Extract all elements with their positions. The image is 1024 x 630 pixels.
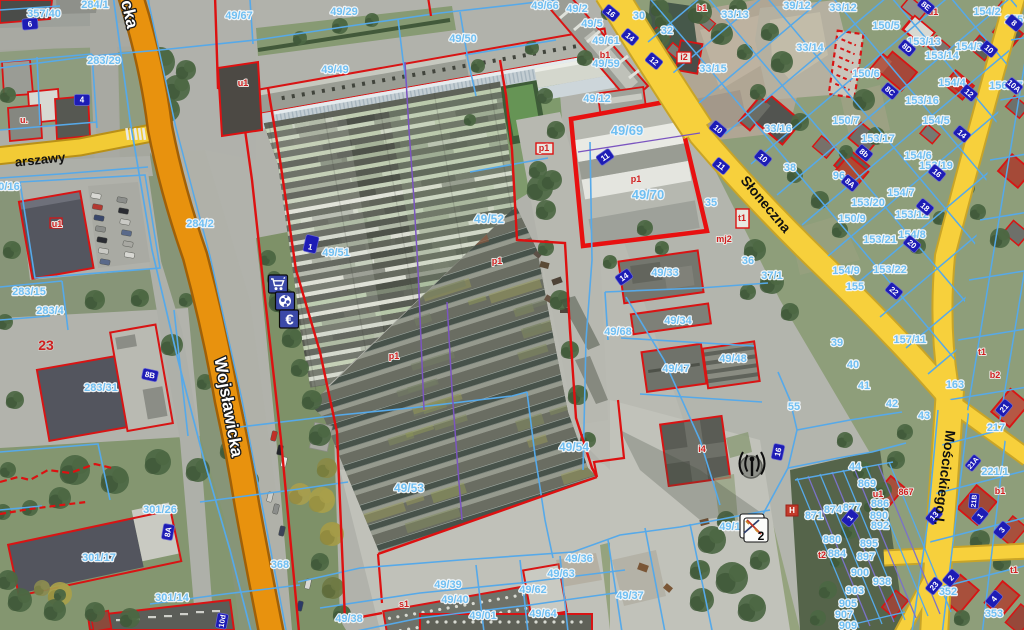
- svg-text:35: 35: [705, 197, 717, 209]
- svg-text:21B: 21B: [971, 494, 979, 507]
- svg-text:u1: u1: [52, 219, 63, 229]
- svg-text:49/54: 49/54: [559, 440, 589, 454]
- svg-text:44: 44: [849, 461, 862, 473]
- svg-text:154/7: 154/7: [887, 187, 915, 199]
- svg-text:154/5: 154/5: [922, 115, 950, 127]
- svg-text:150/6: 150/6: [852, 68, 880, 80]
- svg-text:u1: u1: [873, 489, 884, 499]
- svg-text:23: 23: [38, 337, 54, 353]
- svg-text:p1: p1: [631, 174, 642, 184]
- svg-text:283/4: 283/4: [36, 305, 64, 317]
- svg-text:284/2: 284/2: [186, 218, 214, 230]
- svg-text:49/38: 49/38: [335, 613, 363, 625]
- svg-text:30: 30: [633, 10, 645, 22]
- svg-text:b1: b1: [995, 486, 1006, 496]
- svg-text:39: 39: [831, 337, 843, 349]
- svg-text:217: 217: [987, 422, 1005, 434]
- svg-text:38: 38: [784, 162, 796, 174]
- svg-text:u.: u.: [20, 115, 28, 125]
- svg-text:880: 880: [823, 534, 841, 546]
- svg-text:b1: b1: [697, 3, 708, 13]
- svg-text:903: 903: [846, 585, 864, 597]
- svg-text:49/49: 49/49: [321, 64, 349, 76]
- svg-text:886: 886: [871, 498, 889, 510]
- svg-text:49/50: 49/50: [449, 33, 477, 45]
- svg-text:153/22: 153/22: [873, 264, 907, 276]
- svg-text:49/12: 49/12: [583, 93, 611, 105]
- svg-text:49/52: 49/52: [474, 212, 504, 226]
- svg-text:301/26: 301/26: [143, 504, 177, 516]
- svg-text:49/62: 49/62: [519, 584, 547, 596]
- svg-text:49/40: 49/40: [441, 594, 469, 606]
- svg-text:283/29: 283/29: [87, 55, 121, 67]
- svg-text:871: 871: [805, 510, 823, 522]
- svg-text:8A: 8A: [163, 526, 174, 538]
- svg-text:301/14: 301/14: [155, 592, 190, 604]
- svg-text:283/31: 283/31: [84, 382, 118, 394]
- svg-text:892: 892: [871, 520, 889, 532]
- svg-text:49/66: 49/66: [531, 0, 559, 12]
- svg-text:39/12: 39/12: [783, 0, 811, 12]
- svg-text:884: 884: [828, 548, 847, 560]
- svg-text:49/1: 49/1: [719, 521, 740, 533]
- svg-text:49/51: 49/51: [322, 247, 350, 259]
- svg-text:49/39: 49/39: [434, 579, 462, 591]
- svg-text:€: €: [285, 312, 294, 329]
- svg-text:155: 155: [846, 281, 864, 293]
- svg-text:32: 32: [661, 25, 673, 37]
- svg-text:p1: p1: [492, 256, 503, 266]
- svg-text:895: 895: [860, 538, 878, 550]
- svg-text:u1: u1: [238, 78, 249, 88]
- svg-text:40: 40: [847, 359, 859, 371]
- svg-text:49/64: 49/64: [529, 608, 557, 620]
- svg-text:154/3: 154/3: [955, 41, 983, 53]
- svg-text:221/1: 221/1: [981, 466, 1009, 478]
- svg-text:284/1: 284/1: [81, 0, 109, 11]
- svg-text:49/34: 49/34: [664, 315, 692, 327]
- svg-text:909: 909: [839, 620, 857, 630]
- svg-text:154/2: 154/2: [973, 6, 1001, 18]
- svg-text:41: 41: [858, 380, 870, 392]
- svg-text:p1: p1: [539, 143, 550, 153]
- svg-text:33/15: 33/15: [699, 63, 727, 75]
- svg-text:154/4: 154/4: [938, 77, 966, 89]
- svg-text:49/37: 49/37: [616, 590, 644, 602]
- svg-text:55: 55: [788, 401, 800, 413]
- svg-text:153/17: 153/17: [861, 133, 895, 145]
- svg-text:49/36: 49/36: [565, 553, 593, 565]
- svg-text:153/21: 153/21: [863, 234, 897, 246]
- svg-text:49/47: 49/47: [662, 363, 690, 375]
- svg-text:49/48: 49/48: [719, 353, 747, 365]
- svg-text:368: 368: [271, 559, 289, 571]
- svg-text:4: 4: [80, 96, 85, 105]
- svg-text:157/11: 157/11: [893, 334, 926, 346]
- svg-text:353: 353: [985, 608, 1003, 620]
- svg-text:352: 352: [939, 586, 957, 598]
- svg-text:36: 36: [742, 255, 754, 267]
- svg-text:0/16: 0/16: [0, 181, 20, 193]
- svg-text:163: 163: [946, 379, 964, 391]
- svg-text:33/12: 33/12: [829, 2, 857, 14]
- svg-text:33/14: 33/14: [796, 42, 824, 54]
- svg-text:150/5: 150/5: [872, 20, 900, 32]
- svg-text:150/7: 150/7: [832, 115, 860, 127]
- svg-text:49/69: 49/69: [611, 123, 644, 138]
- svg-text:49/61: 49/61: [592, 35, 620, 47]
- svg-text:t1: t1: [978, 347, 986, 357]
- svg-text:153/20: 153/20: [851, 197, 885, 209]
- svg-text:b2: b2: [990, 370, 1001, 380]
- svg-text:b1: b1: [600, 50, 611, 60]
- svg-text:mj2: mj2: [716, 234, 732, 244]
- svg-text:i4: i4: [698, 444, 706, 454]
- svg-text:33/13: 33/13: [721, 9, 749, 21]
- svg-text:t2: t2: [818, 550, 826, 560]
- svg-text:49/5: 49/5: [581, 18, 602, 30]
- svg-text:150/9: 150/9: [838, 213, 866, 225]
- svg-text:49/2: 49/2: [566, 3, 587, 15]
- svg-text:897: 897: [857, 551, 875, 563]
- svg-text:867: 867: [898, 487, 913, 497]
- svg-text:i2: i2: [680, 52, 688, 62]
- svg-text:t1: t1: [1010, 565, 1018, 575]
- svg-text:874: 874: [824, 504, 843, 516]
- svg-text:49/67: 49/67: [225, 10, 253, 22]
- svg-text:33/16: 33/16: [764, 123, 792, 135]
- svg-text:H: H: [789, 506, 795, 515]
- svg-text:49/53: 49/53: [394, 481, 424, 495]
- svg-text:283/15: 283/15: [12, 286, 46, 298]
- svg-text:49/70: 49/70: [632, 187, 665, 202]
- svg-text:37/1: 37/1: [761, 270, 782, 282]
- svg-text:900: 900: [851, 567, 869, 579]
- svg-text:p1: p1: [389, 351, 400, 361]
- svg-text:301/17: 301/17: [82, 552, 116, 564]
- svg-text:154/9: 154/9: [832, 265, 860, 277]
- svg-text:49/68: 49/68: [604, 326, 632, 338]
- svg-text:49/01: 49/01: [469, 610, 497, 622]
- svg-text:938: 938: [873, 576, 891, 588]
- svg-text:49/63: 49/63: [547, 568, 575, 580]
- svg-text:153/16: 153/16: [905, 95, 939, 107]
- svg-text:49/33: 49/33: [651, 267, 679, 279]
- svg-text:43: 43: [918, 410, 930, 422]
- svg-text:42: 42: [886, 398, 898, 410]
- svg-text:t1: t1: [738, 213, 746, 223]
- svg-text:2: 2: [758, 529, 765, 543]
- svg-text:s1: s1: [399, 599, 409, 609]
- svg-text:49/29: 49/29: [330, 6, 358, 18]
